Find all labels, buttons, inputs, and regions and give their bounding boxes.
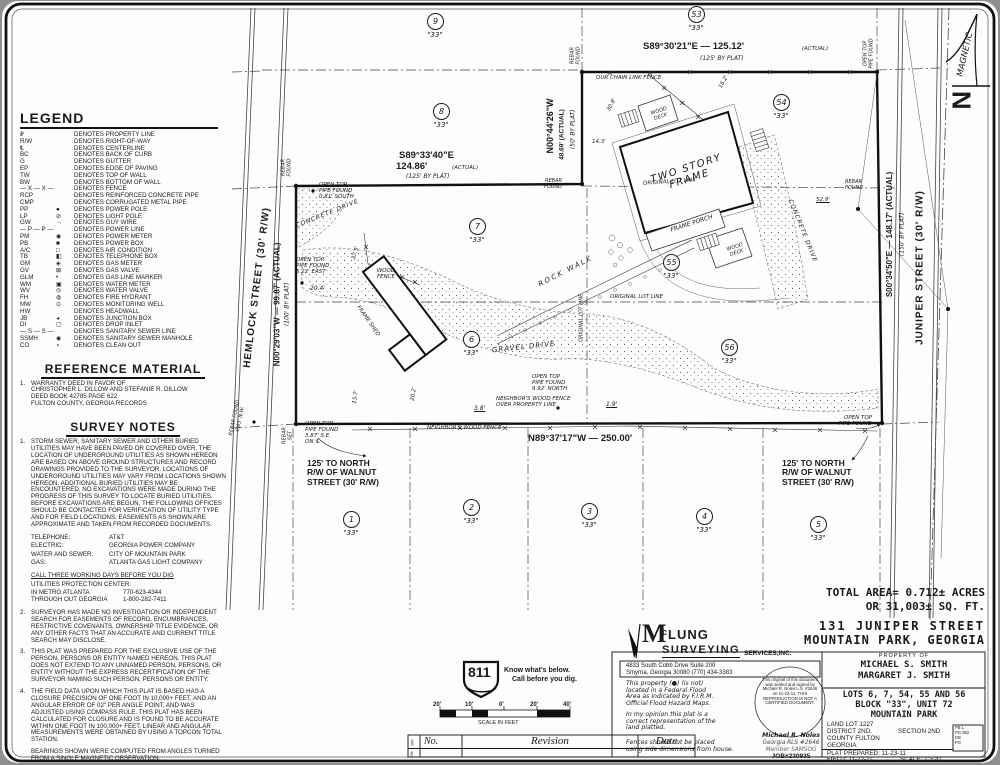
revision-side-label-1: DR: bbox=[410, 739, 414, 746]
reference-text: WARRANTY DEED IN FAVOR OF CHRISTOPHER L.… bbox=[31, 381, 188, 409]
firm-address-line2: Smyrna, Georgia 30080 (770) 434-3383 bbox=[626, 670, 732, 676]
legend-abbr: BC bbox=[20, 152, 56, 159]
call-811-line2: Call before you dig. bbox=[512, 676, 577, 684]
utility-provider: GEORGIA POWER COMPANY bbox=[109, 542, 195, 551]
legend-abbr: CO bbox=[20, 343, 56, 350]
dig-subtitle: UTILITIES PROTECTION CENTER: bbox=[31, 581, 226, 589]
pb-ref-4: PG bbox=[955, 741, 961, 746]
legend-abbr: R/W bbox=[20, 139, 56, 146]
utility-row: GAS: ATLANTA GAS LIGHT COMPANY bbox=[31, 559, 226, 568]
plat-scale: SCALE: 1"=20' bbox=[900, 757, 942, 764]
flood-note: This property (●) (is not) located in a … bbox=[626, 681, 714, 708]
legend-symbol-icon: ▢ bbox=[56, 322, 74, 329]
owner-name-2: MARGARET J. SMITH bbox=[823, 672, 985, 682]
legend-symbol-icon bbox=[56, 146, 74, 153]
call-811-number: 811 bbox=[468, 664, 491, 680]
legend-symbol-icon bbox=[56, 139, 74, 146]
utility-provider: ATLANTA GAS LIGHT COMPANY bbox=[109, 559, 203, 568]
dig-phone: 1-800-282-7411 bbox=[123, 596, 167, 604]
scale-caption: SCALE IN FEET bbox=[478, 721, 519, 727]
legend-row: CO ∘ DENOTES CLEAN OUT bbox=[20, 343, 226, 350]
legend-symbol-icon bbox=[56, 159, 74, 166]
utility-row: WATER AND SEWER: CITY OF MOUNTAIN PARK bbox=[31, 551, 226, 560]
legend-symbol-icon bbox=[56, 180, 74, 187]
dig-phone: 770-623-4344 bbox=[123, 589, 162, 597]
call-before-dig-block: CALL THREE WORKING DAYS BEFORE YOU DIG U… bbox=[31, 572, 226, 604]
legend-symbol-icon: ⊙ bbox=[56, 302, 74, 309]
dig-title: CALL THREE WORKING DAYS BEFORE YOU DIG bbox=[31, 572, 226, 580]
note-text: THE FIELD DATA UPON WHICH THIS PLAT IS B… bbox=[31, 689, 226, 744]
utility-row: TELEPHONE: AT&T bbox=[31, 534, 226, 543]
call-811-line1: Know what's below. bbox=[504, 667, 570, 675]
state: GEORGIA bbox=[827, 743, 856, 750]
note-number: 4. bbox=[20, 689, 28, 744]
survey-note: 2. SURVEYOR HAS MADE NO INVESTIGATION OR… bbox=[20, 610, 226, 645]
dig-phone-row: THROUGH OUT GEORGIA 1-800-282-7411 bbox=[31, 596, 226, 604]
dig-region: IN METRO ATLANTA bbox=[31, 589, 123, 597]
survey-note: 4. THE FIELD DATA UPON WHICH THIS PLAT I… bbox=[20, 689, 226, 744]
legend-symbol-icon bbox=[56, 193, 74, 200]
note-number: 3. bbox=[20, 649, 28, 684]
reference-material-heading: REFERENCE MATERIAL bbox=[20, 360, 226, 378]
notes-panel: LEGEND ₽ DENOTES PROPERTY LINE R/W DENOT… bbox=[20, 110, 226, 765]
legend-symbol-icon bbox=[56, 152, 74, 159]
utility-name: ELECTRIC: bbox=[31, 542, 109, 551]
site-address-line1: 131 JUNIPER STREET bbox=[695, 620, 985, 633]
opinion-note: In my opinion this plat is a correct rep… bbox=[626, 712, 716, 732]
note-number: 1. bbox=[20, 439, 28, 529]
utility-provider: CITY OF MOUNTAIN PARK bbox=[109, 551, 186, 560]
lots-line: LOTS 6, 7, 54, 55 AND 56 bbox=[823, 691, 985, 700]
legend-symbol-icon: ⊠ bbox=[56, 268, 74, 275]
surveyor-license: Georgia RLS #2646 bbox=[748, 740, 834, 746]
surveyor-name: Michael R. Noles bbox=[748, 733, 834, 740]
survey-note: 3. THIS PLAT WAS PREPARED FOR THE EXCLUS… bbox=[20, 649, 226, 684]
field-date: FIELD: 11-22-11 bbox=[827, 757, 873, 764]
survey-notes-list: 2. SURVEYOR HAS MADE NO INVESTIGATION OR… bbox=[20, 610, 226, 765]
north-letter: N bbox=[947, 91, 976, 110]
legend-description: DENOTES CLEAN OUT bbox=[74, 343, 226, 350]
legend-symbol-icon bbox=[56, 186, 74, 193]
note-number: 2. bbox=[20, 610, 28, 645]
reference-number: 1. bbox=[20, 381, 28, 409]
note-number bbox=[20, 749, 28, 763]
note-text: BEARINGS SHOWN WERE COMPUTED FROM ANGLES… bbox=[31, 749, 226, 763]
note-text: STORM SEWER, SANITARY SEWER AND OTHER BU… bbox=[31, 439, 226, 529]
dig-phone-row: IN METRO ATLANTA 770-623-4344 bbox=[31, 589, 226, 597]
firm-logo-c: c bbox=[662, 628, 667, 638]
stamp-text: This original of this document was seale… bbox=[760, 678, 820, 706]
legend-symbol-icon bbox=[56, 166, 74, 173]
utility-contacts: TELEPHONE: AT&T ELECTRIC: GEORGIA POWER … bbox=[20, 534, 226, 568]
legend-symbol-icon bbox=[56, 173, 74, 180]
legend-symbol-icon: → bbox=[56, 220, 74, 227]
survey-note: BEARINGS SHOWN WERE COMPUTED FROM ANGLES… bbox=[20, 749, 226, 763]
block-unit-line: BLOCK "33", UNIT 72 bbox=[823, 701, 985, 710]
legend-symbol-icon bbox=[56, 132, 74, 139]
dig-phone-list: IN METRO ATLANTA 770-623-4344 THROUGH OU… bbox=[31, 589, 226, 604]
firm-logo-surveying: SURVEYING bbox=[662, 645, 740, 658]
revision-col-no: No. bbox=[424, 737, 438, 748]
utility-row: ELECTRIC: GEORGIA POWER COMPANY bbox=[31, 542, 226, 551]
firm-address-line1: 4833 South Cobb Drive Suite 200 bbox=[626, 663, 715, 669]
plat-sheet-stage: LEGEND ₽ DENOTES PROPERTY LINE R/W DENOT… bbox=[0, 0, 1000, 765]
section: SECTION 2ND bbox=[898, 729, 940, 736]
owner-name-1: MICHAEL S. SMITH bbox=[823, 661, 985, 671]
note-text: THIS PLAT WAS PREPARED FOR THE EXCLUSIVE… bbox=[31, 649, 226, 684]
total-area-line2: OR 31,003± SQ. FT. bbox=[695, 601, 985, 613]
reference-item: 1. WARRANTY DEED IN FAVOR OF CHRISTOPHER… bbox=[20, 381, 226, 409]
note-text: SURVEYOR HAS MADE NO INVESTIGATION OR IN… bbox=[31, 610, 226, 645]
job-number: JOB#230935 bbox=[748, 753, 834, 760]
firm-logo-lung: LUNG bbox=[668, 628, 709, 642]
revision-col-revision: Revision bbox=[462, 736, 638, 748]
revision-side-label-2: DB: bbox=[410, 751, 414, 758]
subdivision-line: MOUNTAIN PARK bbox=[823, 711, 985, 720]
survey-notes-heading: SURVEY NOTES bbox=[20, 418, 226, 436]
legend-list: ₽ DENOTES PROPERTY LINE R/W DENOTES RIGH… bbox=[20, 132, 226, 350]
legend-symbol-icon: ∘ bbox=[56, 343, 74, 350]
total-area-line1: TOTAL AREA= 0.712± ACRES bbox=[695, 587, 985, 599]
legend-title: LEGEND bbox=[20, 110, 218, 129]
firm-logo-services: SERVICES,INC. bbox=[744, 650, 792, 657]
fences-note: Fences should not be placed using side d… bbox=[626, 740, 734, 753]
utility-name: GAS: bbox=[31, 559, 109, 568]
utility-name: WATER AND SEWER: bbox=[31, 551, 109, 560]
utility-name: TELEPHONE: bbox=[31, 534, 109, 543]
survey-note-1: 1. STORM SEWER, SANITARY SEWER AND OTHER… bbox=[20, 439, 226, 529]
dig-region: THROUGH OUT GEORGIA bbox=[31, 596, 123, 604]
utility-provider: AT&T bbox=[109, 534, 124, 543]
